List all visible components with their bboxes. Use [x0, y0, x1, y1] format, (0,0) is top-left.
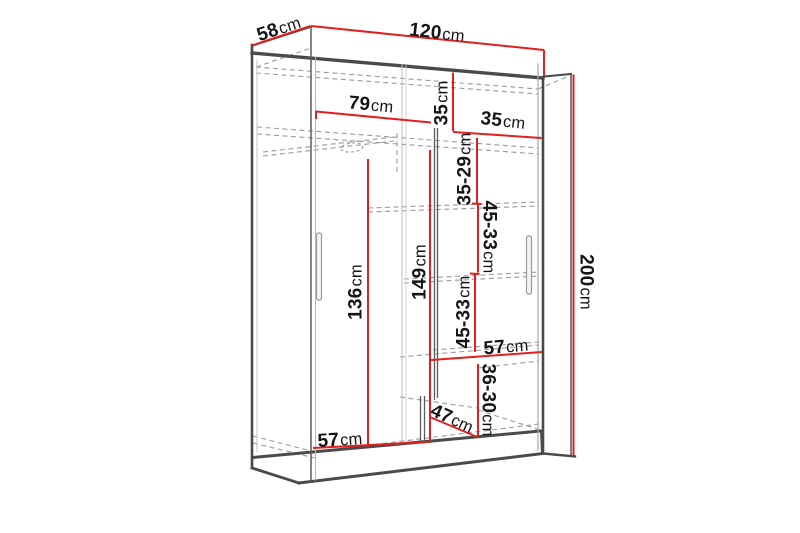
wardrobe-top-face	[252, 26, 544, 78]
dim-label-bottom-left-width: 57cm	[317, 429, 363, 451]
dim-label-right-gap-top: 35-29cm	[456, 132, 475, 205]
dim-label-left-inner-height: 149cm	[411, 244, 430, 300]
wardrobe-line-drawing	[0, 0, 800, 533]
dim-label-right-gap-lower: 45-33cm	[455, 275, 474, 348]
dim-label-hanging-height: 136cm	[347, 264, 366, 320]
dim-label-top-right-shelf-width: 35cm	[480, 109, 527, 133]
left-door-handle	[317, 233, 322, 300]
dim-label-right-gap-middle: 45-33cm	[480, 200, 499, 273]
dim-label-height: 200cm	[577, 254, 596, 310]
wardrobe-dimension-diagram: 58cm 120cm 200cm 79cm 35cm 35cm 35-29cm …	[0, 0, 800, 533]
dimension-lines	[252, 26, 574, 456]
dim-label-bottom-right-height: 36-30cm	[479, 363, 498, 436]
right-door-handle	[527, 236, 532, 294]
dim-label-left-section-width: 79cm	[348, 93, 395, 116]
dim-label-bottom-right-width: 57cm	[483, 336, 529, 359]
dim-label-top-shelf-drop: 35cm	[433, 81, 452, 126]
